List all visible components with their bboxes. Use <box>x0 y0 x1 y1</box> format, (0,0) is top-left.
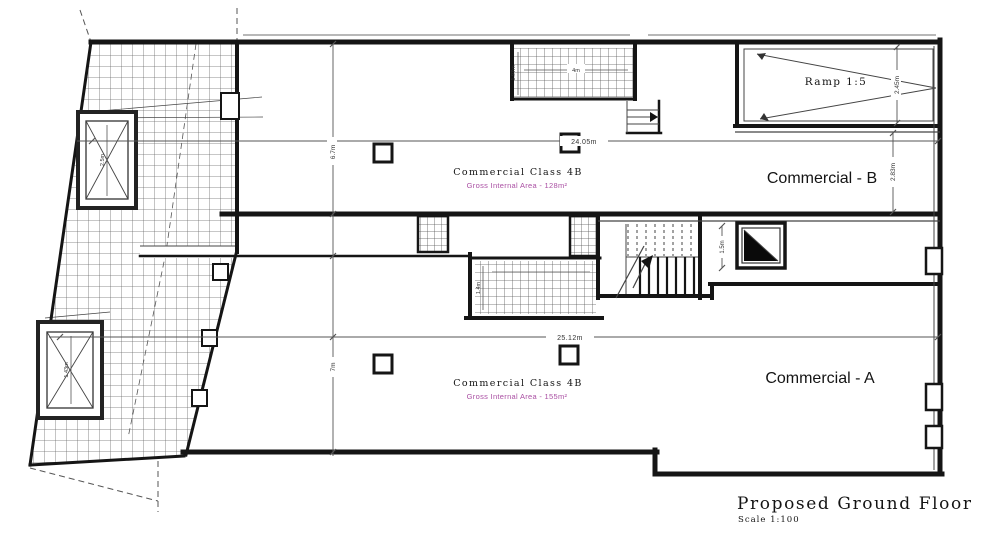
dim-ramp-width: 2.45m <box>894 76 901 94</box>
dim-lift-left-upper: 2.5m <box>100 153 106 166</box>
stair-upper-flight <box>628 224 691 256</box>
dim-unit-b-width: 24.05m <box>571 139 597 146</box>
lift-shaft-upper-left <box>78 112 136 208</box>
column <box>374 144 392 162</box>
dim-unit-a-depth: 7m <box>330 362 337 371</box>
dim-unit-b-right-depth: 2.83m <box>890 163 897 181</box>
unit-b-area-label: Gross Internal Area - 128m² <box>467 181 568 190</box>
dim-entrance-depth: 1.4m <box>476 281 482 294</box>
ramp-label: Ramp 1:5 <box>805 76 868 88</box>
dim-unit-b-depth: 6.7m <box>330 145 337 159</box>
column <box>374 355 392 373</box>
stair-core <box>616 224 698 298</box>
entrance-strip-hatch <box>475 261 596 314</box>
dim-unit-a-width: 25.12m <box>557 335 583 342</box>
unit-b-class-label: Commercial Class 4B <box>453 167 583 178</box>
wall-jog <box>192 390 207 406</box>
hatched-pier <box>418 216 448 252</box>
wall-recess <box>926 384 942 410</box>
floor-plan-drawing: 24.05m 25.12m 6.7m 7m 2.45m 2.83m 1.5m 2… <box>0 0 989 543</box>
small-entry-stair <box>627 101 661 133</box>
dim-top-block-width: 4m <box>572 68 580 74</box>
wall-recess <box>926 426 942 448</box>
core-lift <box>737 223 785 268</box>
ramp-arrowhead <box>757 53 766 60</box>
sheet-scale: Scale 1:100 <box>738 515 800 525</box>
ramp-arrowhead <box>760 113 769 121</box>
wall-jog <box>213 264 228 280</box>
wall-recess <box>926 248 942 274</box>
wall-jog <box>202 330 217 346</box>
unit-a-name-label: Commercial - A <box>765 370 875 387</box>
unit-a-class-label: Commercial Class 4B <box>453 378 583 389</box>
unit-b-name-label: Commercial - B <box>767 170 877 187</box>
door-recess <box>221 93 239 119</box>
column <box>560 346 578 364</box>
hatched-pier <box>570 216 598 256</box>
unit-a-area-label: Gross Internal Area - 155m² <box>467 392 568 401</box>
lift-shaft-lower-left <box>38 322 102 418</box>
title-block: Proposed Ground Floor Scale 1:100 <box>737 494 973 525</box>
sheet-title: Proposed Ground Floor <box>737 494 973 514</box>
floor-plan-sheet: 24.05m 25.12m 6.7m 7m 2.45m 2.83m 1.5m 2… <box>0 0 989 543</box>
dim-lift-left-lower: 1.43m <box>64 362 70 378</box>
stair-arrowhead <box>650 112 658 122</box>
dim-top-block-depth: 1.97m <box>511 65 517 81</box>
wall-piers-hatched <box>418 216 598 256</box>
dim-lift-lobby: 1.5m <box>720 240 726 253</box>
